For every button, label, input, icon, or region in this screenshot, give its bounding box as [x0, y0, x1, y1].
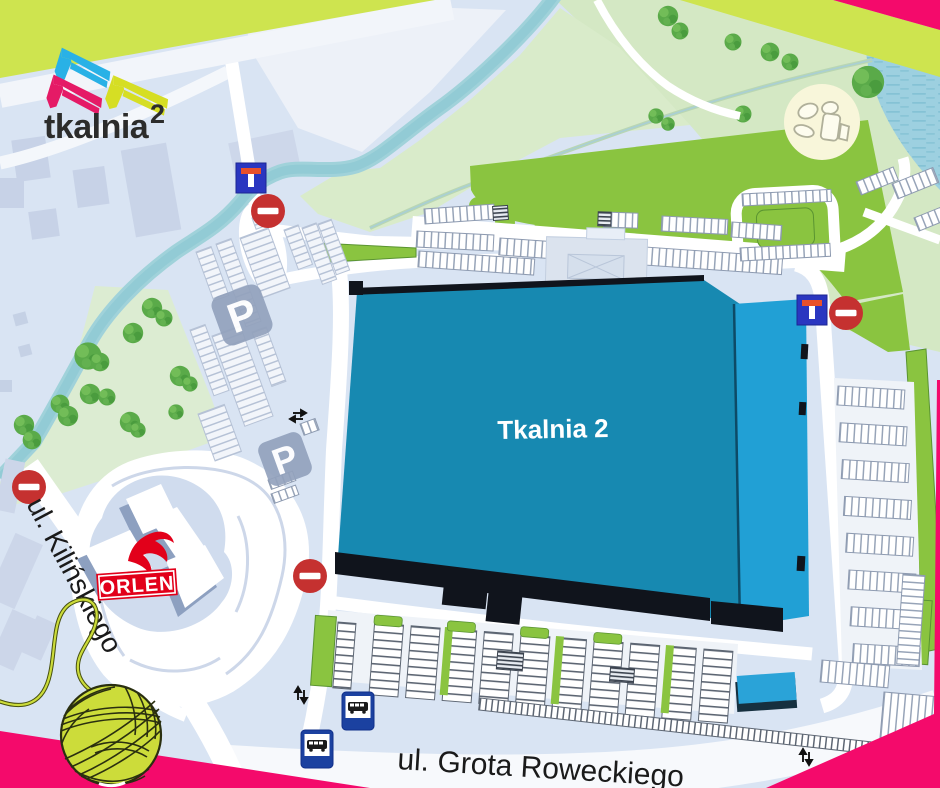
svg-text:tkalnia: tkalnia	[44, 108, 150, 146]
svg-text:Tkalnia 2: Tkalnia 2	[497, 413, 609, 445]
svg-text:2: 2	[150, 99, 165, 129]
